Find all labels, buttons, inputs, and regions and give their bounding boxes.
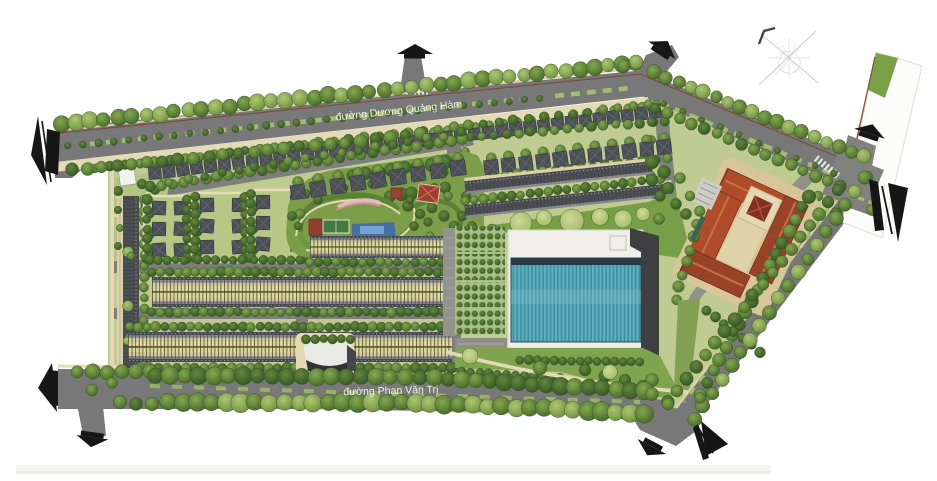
svg-text:đường Phan Văn Trị: đường Phan Văn Trị <box>343 384 438 398</box>
